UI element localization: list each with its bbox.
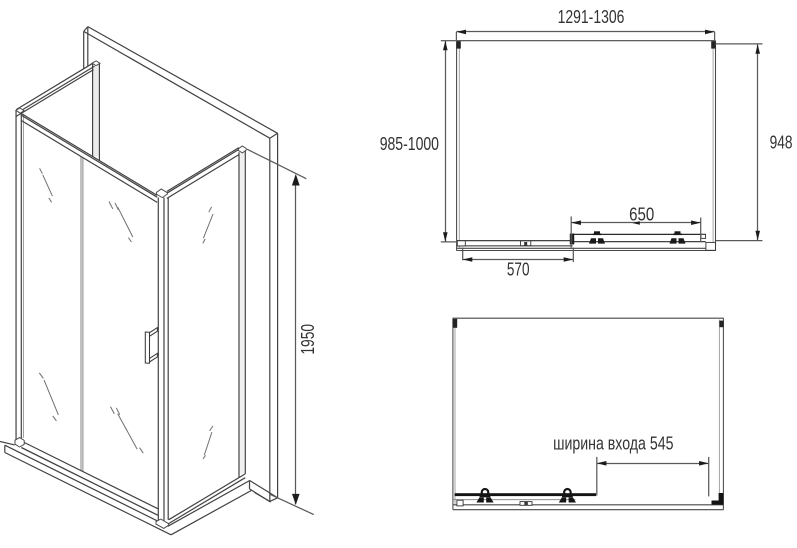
svg-text:948: 948 [770,132,793,152]
svg-text:570: 570 [507,260,530,280]
svg-text:1950: 1950 [298,324,318,355]
svg-text:650: 650 [629,205,654,225]
svg-text:1291-1306: 1291-1306 [558,7,625,27]
svg-text:985-1000: 985-1000 [380,134,439,154]
svg-text:ширина входа 545: ширина входа 545 [553,433,673,453]
